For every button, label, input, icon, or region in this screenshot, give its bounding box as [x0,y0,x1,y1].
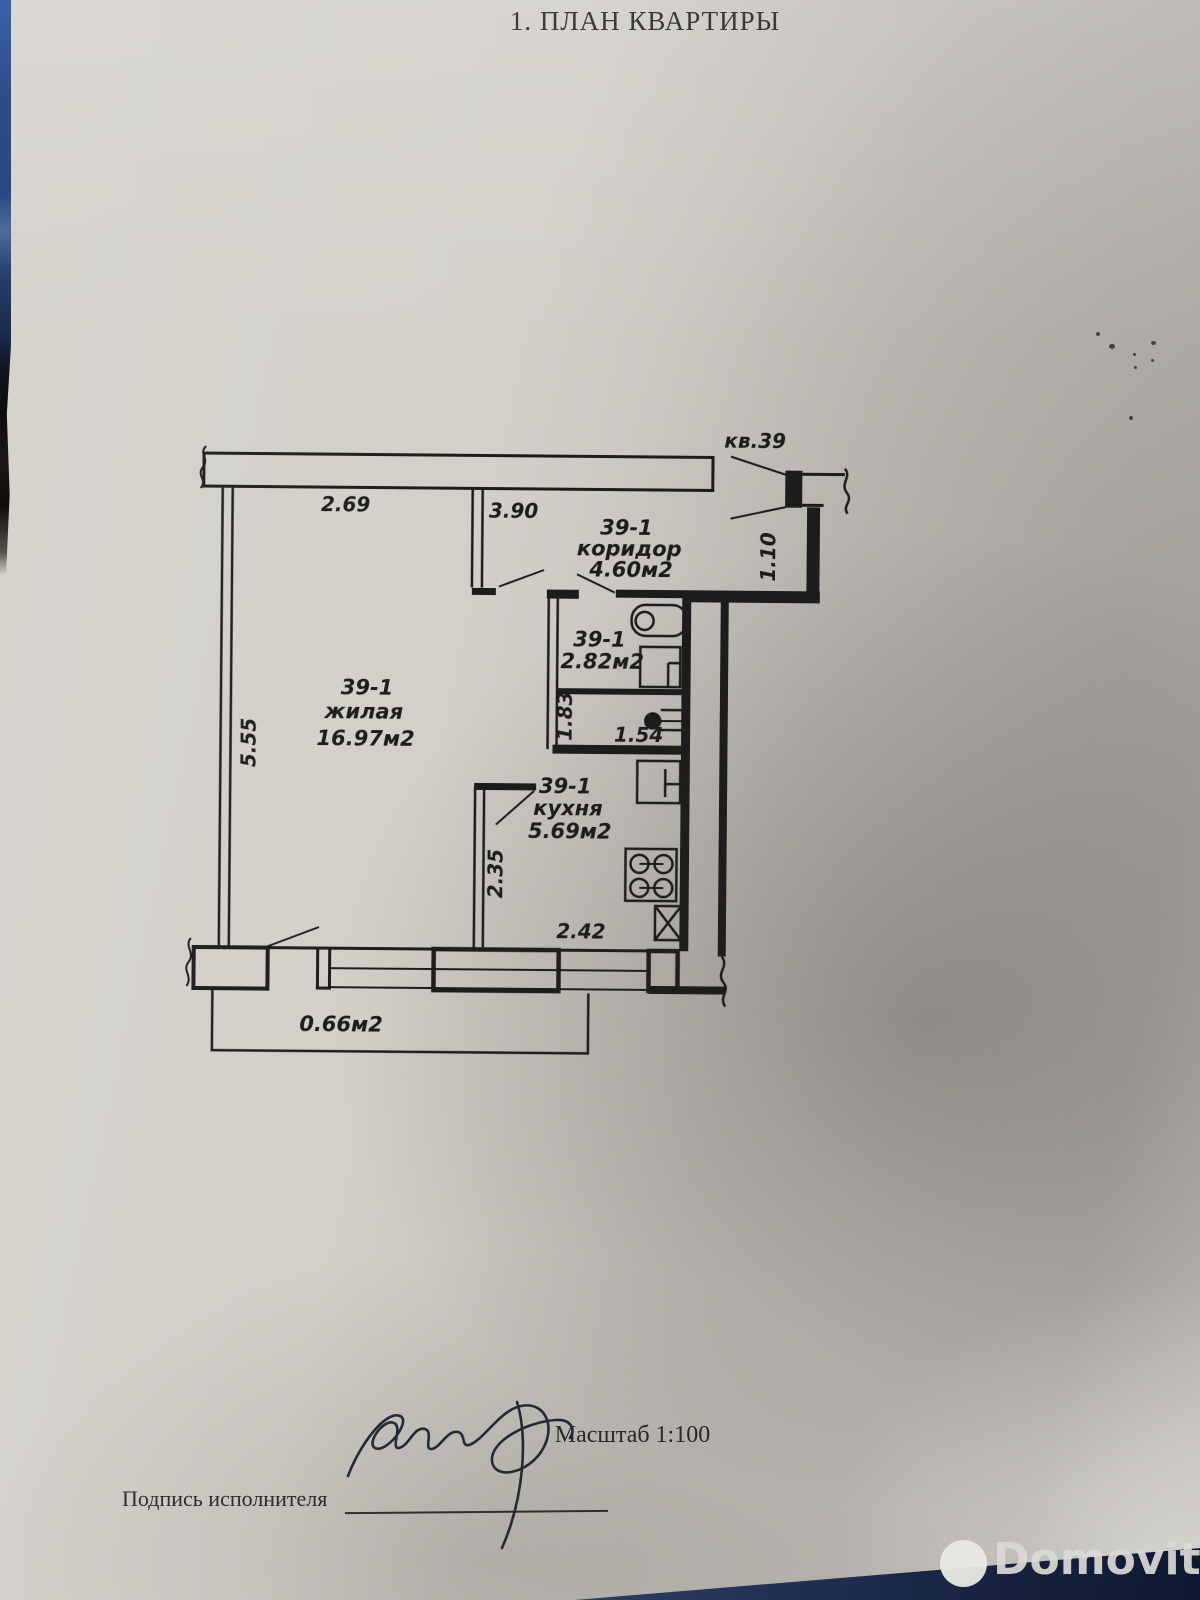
ink-speck [1109,344,1115,349]
watermark-brand: Domovita [993,1534,1200,1585]
ink-speck [1096,332,1100,336]
photographed-floor-plan-page: 1. ПЛАН КВАРТИРЫ [0,0,1200,1600]
ink-speck [1134,366,1137,369]
ink-speck [1133,353,1136,356]
ink-speck [1129,416,1133,420]
ink-speck [1151,341,1156,345]
handwritten-signature [0,0,1200,1600]
photo-left-edge [0,0,11,575]
ink-speck [1151,359,1154,362]
watermark-dot [940,1540,987,1587]
